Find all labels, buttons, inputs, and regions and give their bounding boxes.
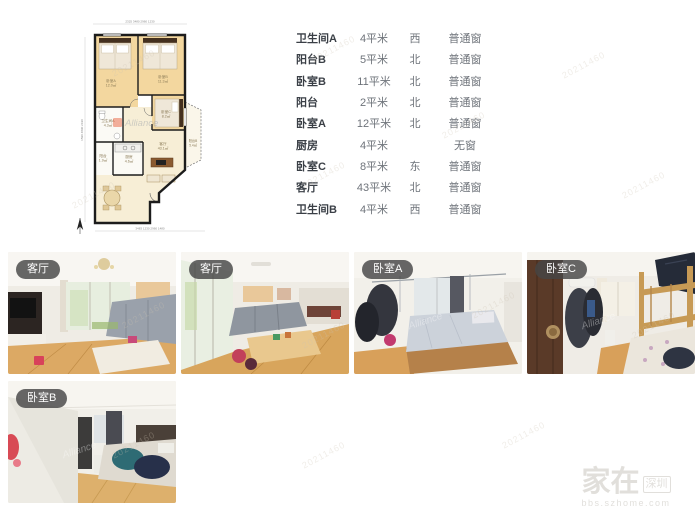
room-area: 11平米: [352, 77, 396, 88]
photo-label-badge: 客厅: [189, 260, 233, 279]
label-balcony-area: 1.9㎡: [99, 158, 108, 163]
label-bathroomA-area: 4.3㎡: [104, 123, 113, 128]
date-watermark: 20211460: [500, 419, 547, 450]
photo-label-badge: 卧室C: [535, 260, 587, 279]
room-name: 卧室B: [296, 77, 352, 88]
alliance-watermark-text: Alliance: [124, 118, 158, 129]
room-direction: 北: [396, 55, 434, 66]
room-area: 12平米: [352, 119, 396, 130]
room-direction: 北: [396, 77, 434, 88]
label-bedroomA-name: 卧室A: [106, 78, 116, 83]
room-name: 卧室C: [296, 162, 352, 173]
label-bedroomB-area: 11.3㎡: [158, 79, 169, 84]
room-name: 卫生间A: [296, 34, 352, 45]
label-bedroomB-name: 卧室B: [158, 74, 168, 79]
dims-bottom: 3483 1230 2960 1480: [135, 227, 165, 231]
room-direction: 西: [396, 205, 434, 216]
room-direction: 北: [396, 98, 434, 109]
table-row: 卧室C 8平米 东 普通窗: [296, 157, 496, 178]
floorplan-image[interactable]: 2325 3480 2960 1230 3483 1230 2960 1480 …: [75, 12, 235, 240]
room-window: 普通窗: [434, 55, 496, 66]
label-living-name: 客厅: [159, 141, 167, 146]
site-logo-city: 深圳: [643, 476, 671, 493]
room-name: 客厅: [296, 183, 352, 194]
room-area: 4平米: [352, 34, 396, 45]
room-name: 卧室A: [296, 119, 352, 130]
photo-living-room-1[interactable]: 客厅: [8, 252, 176, 374]
table-row: 阳台B 5平米 北 普通窗: [296, 50, 496, 71]
north-compass-icon: [77, 218, 83, 234]
room-area: 4平米: [352, 141, 396, 152]
room-area: 43平米: [352, 183, 396, 194]
label-balcony-name: 阳台: [99, 153, 107, 158]
site-logo-watermark: 家在 深圳 bbs.szhome.com: [562, 467, 690, 508]
room-window: 普通窗: [434, 34, 496, 45]
table-row: 卫生间A 4平米 西 普通窗: [296, 29, 496, 50]
photo-bedroom-a[interactable]: 卧室A Alliance: [354, 252, 522, 374]
dims-left: 1590 4890 2190: [80, 119, 84, 141]
room-window: 普通窗: [434, 98, 496, 109]
table-row: 卧室A 12平米 北 普通窗: [296, 114, 496, 135]
site-logo-url: bbs.szhome.com: [562, 498, 690, 508]
date-watermark: 20211460: [300, 439, 347, 470]
photo-label-badge: 客厅: [16, 260, 60, 279]
room-name: 阳台B: [296, 55, 352, 66]
label-balconyB-name: 阳台B: [189, 138, 198, 143]
site-logo-text: 家在: [581, 467, 639, 496]
photo-label-badge: 卧室A: [362, 260, 413, 279]
room-area: 8平米: [352, 162, 396, 173]
room-name: 厨房: [296, 141, 352, 152]
photo-bedroom-b[interactable]: 卧室B Alliance: [8, 381, 176, 503]
table-row: 阳台 2平米 北 普通窗: [296, 93, 496, 114]
room-area: 5平米: [352, 55, 396, 66]
label-kitchen-name: 厨房: [125, 154, 133, 159]
photo-bedroom-c[interactable]: 卧室C Alliance: [527, 252, 695, 374]
date-watermark: 20211460: [620, 169, 667, 200]
table-row: 卧室B 11平米 北 普通窗: [296, 72, 496, 93]
room-direction: 西: [396, 34, 434, 45]
room-window: 普通窗: [434, 183, 496, 194]
photo-label-badge: 卧室B: [16, 389, 67, 408]
room-window: 普通窗: [434, 162, 496, 173]
room-window: 普通窗: [434, 77, 496, 88]
room-window: 无窗: [434, 141, 496, 152]
label-living-area: 43.1㎡: [158, 146, 169, 151]
room-name: 卫生间B: [296, 205, 352, 216]
table-row: 客厅 43平米 北 普通窗: [296, 178, 496, 199]
dims-top: 2325 3480 2960 1230: [125, 20, 155, 24]
room-name: 阳台: [296, 98, 352, 109]
label-bedroomC-area: 8.2㎡: [162, 114, 171, 119]
label-balconyB-area: 5.4㎡: [189, 142, 197, 147]
room-area: 2平米: [352, 98, 396, 109]
room-direction: 北: [396, 183, 434, 194]
label-kitchen-area: 4.6㎡: [125, 159, 134, 164]
date-watermark: 20211460: [560, 49, 607, 80]
label-bedroomC-name: 卧室C: [161, 109, 171, 114]
label-bedroomA-area: 12.0㎡: [106, 83, 117, 88]
room-area: 4平米: [352, 205, 396, 216]
room-direction: 北: [396, 119, 434, 130]
photo-living-room-2[interactable]: 客厅: [181, 252, 349, 374]
table-row: 厨房 4平米 无窗: [296, 135, 496, 156]
room-direction: 东: [396, 162, 434, 173]
table-row: 卫生间B 4平米 西 普通窗: [296, 199, 496, 220]
room-info-table: 卫生间A 4平米 西 普通窗 阳台B 5平米 北 普通窗 卧室B 11平米 北 …: [296, 29, 496, 221]
room-window: 普通窗: [434, 119, 496, 130]
room-window: 普通窗: [434, 205, 496, 216]
